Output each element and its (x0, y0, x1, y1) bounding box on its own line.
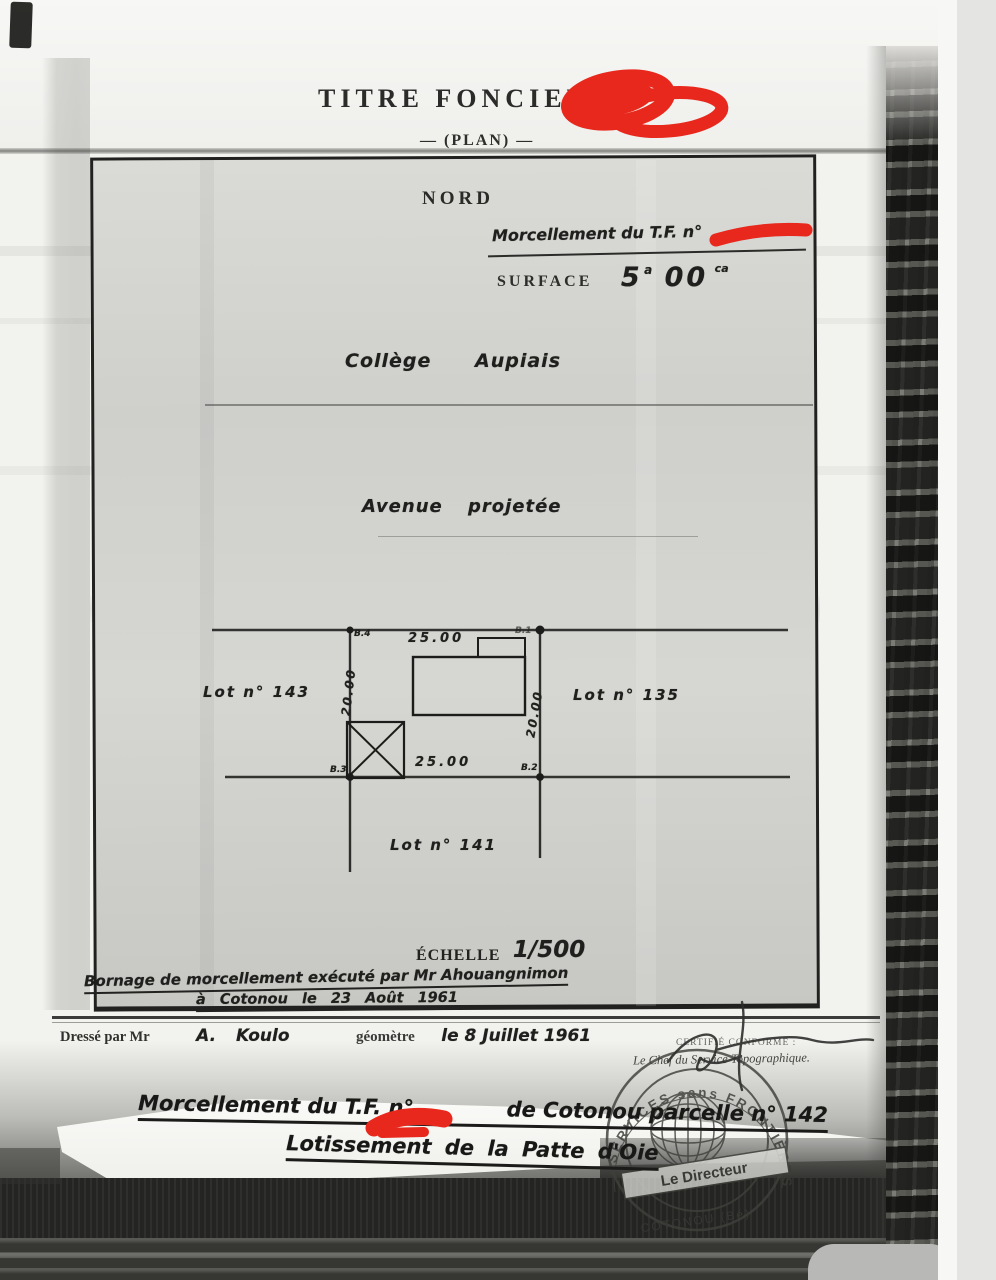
frame-streak-1 (200, 160, 214, 1006)
surface-line: SURFACE 5 a 00 ca (497, 262, 729, 293)
college-rule (205, 404, 813, 406)
marker-b1: B.1 (515, 626, 532, 636)
dark-band-lower (0, 1238, 940, 1280)
surface-ares-unit: a (644, 263, 652, 277)
left-scan-band (42, 58, 90, 1010)
dark-band-highlight (0, 1252, 940, 1258)
surface-centiares: 00 (665, 262, 709, 293)
dark-band-main (0, 1178, 940, 1240)
film-strip (886, 46, 940, 1280)
surface-ares: 5 (621, 262, 640, 293)
below-frame-line-2 (52, 1022, 880, 1023)
scanned-document-page: TITRE FONCIER N° — (PLAN) — NORD Morcell… (0, 0, 996, 1280)
right-white-strip (938, 0, 957, 1280)
left-edge-shadow (0, 1148, 60, 1184)
scale-value: 1/500 (513, 937, 585, 963)
surface-label: SURFACE (497, 273, 592, 290)
marker-b2: B.2 (521, 763, 538, 773)
lot-135-label: Lot n° 135 (573, 686, 680, 704)
film-strip-top-fade (886, 46, 940, 146)
marker-b4: B.4 (354, 629, 371, 639)
below-frame-line (52, 1016, 880, 1019)
corner-rounded-overlay (808, 1244, 956, 1280)
scale-line: ÉCHELLE 1/500 (416, 940, 585, 966)
document-subtitle: — (PLAN) — (420, 132, 534, 150)
bottom-line1-end: de Cotonou parcelle n° 142 (506, 1097, 828, 1127)
surface-centiares-unit: ca (715, 262, 729, 275)
avenue-label: Avenue projetée (362, 496, 562, 517)
dim-top: 25.00 (408, 631, 464, 646)
marker-b3: B.3 (330, 765, 347, 775)
college-label: Collège Aupiais (345, 350, 561, 372)
bornage-line-2: à Cotonou le 23 Août 1961 (196, 990, 458, 1012)
paper-top-light (0, 0, 940, 150)
north-label: NORD (422, 188, 494, 210)
bottom-line1-start: Morcellement du T.F. n° (138, 1091, 414, 1120)
film-edge-fade (866, 46, 886, 1280)
dim-bottom: 25.00 (415, 755, 471, 770)
avenue-rule (378, 536, 698, 537)
corner-mark (9, 2, 33, 49)
scale-label: ÉCHELLE (416, 947, 500, 964)
lot-143-label: Lot n° 143 (203, 683, 310, 701)
lot-141-label: Lot n° 141 (390, 836, 497, 854)
right-gray-strip (957, 0, 996, 1280)
document-title: TITRE FONCIER N° (318, 84, 641, 114)
redacted-gap (421, 1115, 499, 1116)
